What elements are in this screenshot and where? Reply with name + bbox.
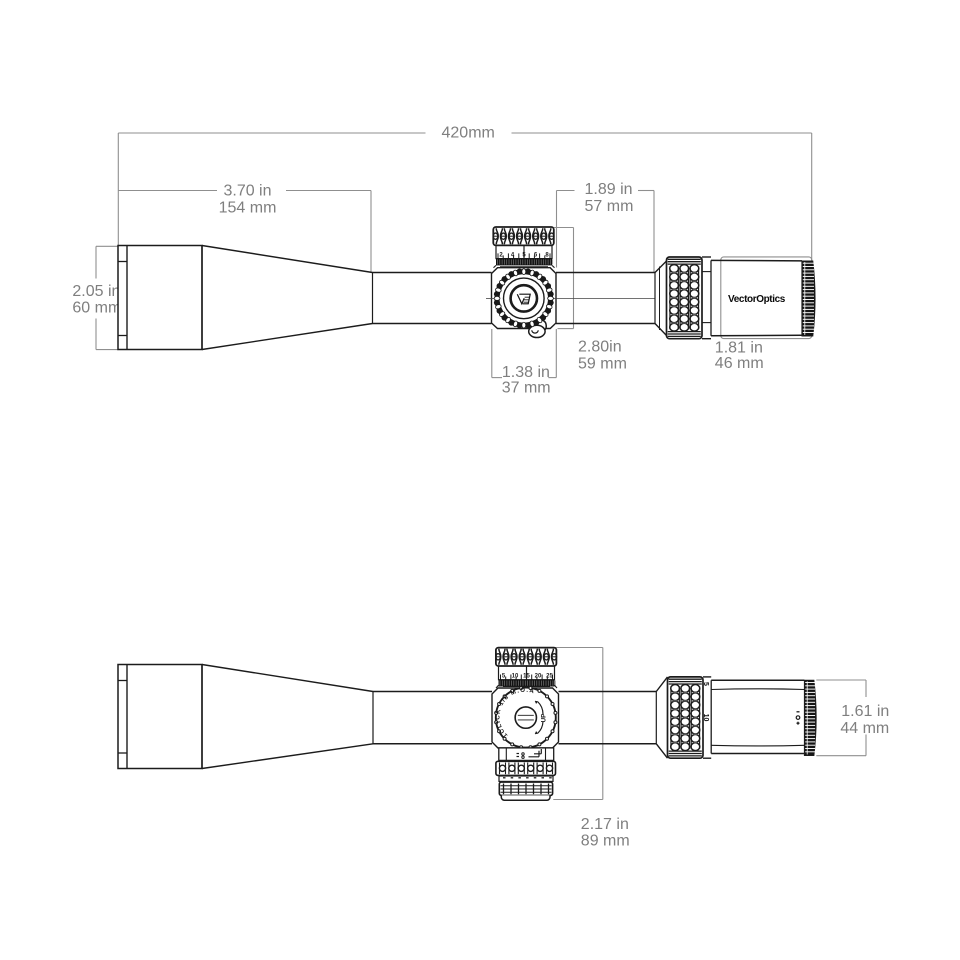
svg-text:10: 10 [702,714,709,722]
svg-text:1.81 in: 1.81 in [715,340,763,357]
svg-text:46 mm: 46 mm [715,355,764,372]
svg-text:59 mm: 59 mm [578,356,627,373]
svg-text:UP: UP [541,714,548,723]
svg-text:10: 10 [512,674,519,680]
svg-text:2.17 in: 2.17 in [581,816,629,833]
svg-text:3.70 in: 3.70 in [223,183,271,200]
svg-text:25: 25 [546,674,553,680]
svg-text:20: 20 [535,674,542,680]
svg-text:420mm: 420mm [442,125,495,142]
svg-text:1.89 in: 1.89 in [585,181,633,198]
svg-text:154 mm: 154 mm [219,200,277,217]
svg-text:44 mm: 44 mm [840,720,889,737]
svg-text:89 mm: 89 mm [581,832,630,849]
svg-text:37 mm: 37 mm [502,380,551,397]
svg-text:1.38 in: 1.38 in [502,364,550,381]
svg-text:1.61 in: 1.61 in [841,703,889,720]
svg-text:57 mm: 57 mm [585,198,634,215]
svg-text:60 mm: 60 mm [72,300,121,317]
svg-text:2.80in: 2.80in [578,339,622,356]
svg-text:VectorOptics: VectorOptics [728,294,786,305]
svg-text:15: 15 [523,674,530,680]
svg-text:5: 5 [702,682,709,686]
svg-text:2.05 in: 2.05 in [72,283,120,300]
